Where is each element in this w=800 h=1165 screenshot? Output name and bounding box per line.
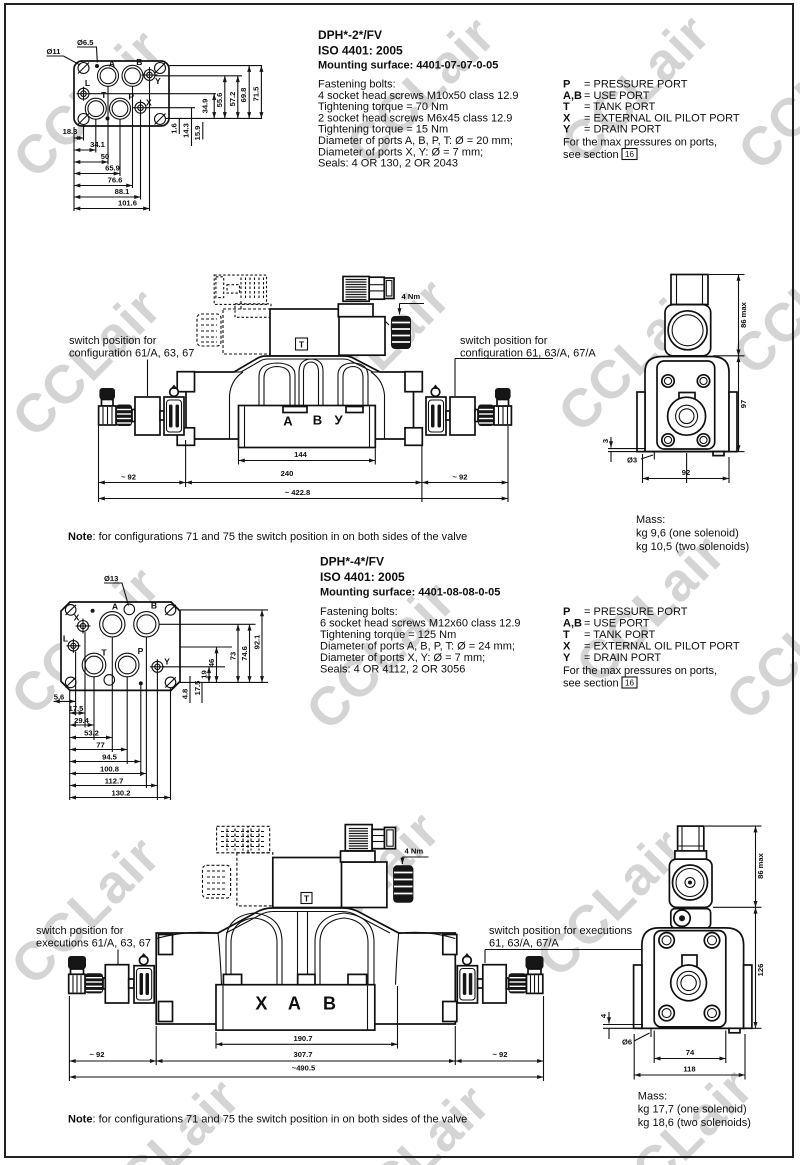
svg-text:~ 92: ~ 92 [453,473,468,482]
svg-text:6 socket head screws M12x60 cl: 6 socket head screws M12x60 class 12.9 [320,618,521,630]
svg-text:61, 63/A, 67/A: 61, 63/A, 67/A [489,938,559,950]
svg-text:Mounting surface: 4401-07-07-0: Mounting surface: 4401-07-07-0-05 [318,60,498,72]
svg-text:X: X [563,641,571,653]
svg-text:see section: see section [563,678,619,690]
svg-text:55.6: 55.6 [215,93,224,108]
svg-text:P: P [128,92,134,102]
svg-text:DPH*-2*/FV: DPH*-2*/FV [318,28,382,42]
svg-text:Diameter of ports X, Y: Ø = 7: Diameter of ports X, Y: Ø = 7 mm; [320,652,485,664]
svg-text:65.9: 65.9 [105,164,120,173]
svg-text:CCLair: CCLair [721,215,800,387]
svg-text:У: У [334,413,343,428]
svg-text:126: 126 [756,964,765,977]
svg-text:14.3: 14.3 [182,123,191,138]
svg-text:34.9: 34.9 [201,99,210,114]
svg-text:Diameter of ports A, B, P, T:: Diameter of ports A, B, P, T: Ø = 20 mm; [318,135,513,147]
svg-text:2 socket head screws M6x45 cla: 2 socket head screws M6x45 class 12.9 [318,112,512,124]
svg-text:= TANK PORT: = TANK PORT [584,101,655,113]
svg-text:4.8: 4.8 [181,689,190,700]
svg-text:53.2: 53.2 [84,729,99,738]
svg-text:T: T [563,629,570,641]
svg-text:~ 422.8: ~ 422.8 [285,488,311,497]
svg-text:19: 19 [200,670,209,678]
svg-text:B: B [151,601,157,611]
svg-text:Ø6: Ø6 [622,1038,632,1047]
svg-text:switch position for: switch position for [36,925,124,937]
svg-text:101.6: 101.6 [118,199,137,208]
svg-text:3: 3 [601,439,610,443]
svg-text:P: P [138,646,144,656]
svg-text:X: X [74,613,80,623]
svg-text:Y: Y [563,124,571,136]
svg-text:= USE PORT: = USE PORT [584,618,650,630]
svg-text:A: A [288,994,301,1014]
svg-text:Note: for configurations 71 an: Note: for configurations 71 and 75 the s… [68,1114,467,1126]
svg-text:T: T [101,90,107,100]
svg-text:77: 77 [96,741,104,750]
svg-text:46: 46 [207,659,216,667]
svg-text:~ 92: ~ 92 [121,473,136,482]
svg-text:P: P [563,606,570,618]
svg-text:86 max: 86 max [756,852,765,879]
svg-text:B: B [323,994,336,1014]
svg-text:For the max pressures on ports: For the max pressures on ports, [563,137,717,149]
svg-text:Diameter of ports X, Y: Ø = 7: Diameter of ports X, Y: Ø = 7 mm; [318,146,483,158]
svg-text:DPH*-4*/FV: DPH*-4*/FV [320,555,384,569]
svg-text:Tightening torque = 70 Nm: Tightening torque = 70 Nm [318,101,448,113]
svg-text:88.1: 88.1 [115,187,131,196]
svg-text:34.1: 34.1 [90,140,106,149]
svg-text:97: 97 [739,400,748,408]
svg-text:CCLair: CCLair [727,10,800,182]
svg-text:kg 17,7 (one solenoid): kg 17,7 (one solenoid) [638,1104,747,1116]
svg-text:Ø3: Ø3 [627,456,637,465]
svg-text:Y: Y [155,76,161,86]
svg-text:~490.5: ~490.5 [292,1064,316,1073]
svg-text:For the max pressures on ports: For the max pressures on ports, [563,665,717,677]
svg-text:= DRAIN PORT: = DRAIN PORT [584,652,661,664]
svg-text:~ 92: ~ 92 [90,1050,105,1059]
svg-text:17.5: 17.5 [193,680,202,696]
svg-text:X: X [255,994,267,1014]
svg-text:L: L [63,634,68,644]
svg-text:= TANK PORT: = TANK PORT [584,629,655,641]
svg-text:4 socket head screws M10x50 cl: 4 socket head screws M10x50 class 12.9 [318,90,519,102]
svg-text:Ø13: Ø13 [104,574,118,583]
svg-text:16: 16 [625,679,634,688]
svg-text:P: P [563,79,570,91]
svg-text:= EXTERNAL OIL PILOT PORT: = EXTERNAL OIL PILOT PORT [584,641,740,653]
svg-text:5.6: 5.6 [54,693,65,702]
svg-text:73: 73 [229,652,238,660]
svg-text:29.4: 29.4 [74,716,90,725]
svg-text:112.7: 112.7 [105,777,124,786]
svg-text:4: 4 [599,1013,608,1018]
svg-text:= EXTERNAL OIL PILOT PORT: = EXTERNAL OIL PILOT PORT [584,112,740,124]
svg-text:Mounting surface: 4401-08-08-0: Mounting surface: 4401-08-08-0-05 [320,587,500,599]
svg-text:15.9: 15.9 [193,126,202,141]
svg-text:Y: Y [563,652,571,664]
svg-text:17.5: 17.5 [69,704,85,713]
svg-text:100.8: 100.8 [100,765,119,774]
svg-text:switch position for: switch position for [69,335,157,347]
svg-text:ISO 4401: 2005: ISO 4401: 2005 [318,44,403,58]
svg-text:74: 74 [686,1048,695,1057]
svg-text:71.5: 71.5 [251,86,260,102]
svg-text:Fastening bolts:: Fastening bolts: [320,606,398,618]
svg-text:switch position for executions: switch position for executions [489,925,633,937]
svg-text:Note: for configurations 71 an: Note: for configurations 71 and 75 the s… [68,531,467,543]
svg-text:A,B: A,B [563,618,582,630]
svg-text:executions 61/A, 63, 67: executions 61/A, 63, 67 [36,938,151,950]
svg-text:Seals: 4 OR 4112, 2 OR 3056: Seals: 4 OR 4112, 2 OR 3056 [320,664,465,676]
svg-text:Ø6.5: Ø6.5 [77,38,94,47]
svg-text:Tightening torque = 15 Nm: Tightening torque = 15 Nm [318,124,448,136]
svg-text:92.1: 92.1 [253,634,262,650]
svg-text:A: A [112,602,118,612]
svg-text:~ 92: ~ 92 [493,1050,508,1059]
svg-text:4 Nm: 4 Nm [402,292,421,301]
svg-text:Tightening torque = 125 Nm: Tightening torque = 125 Nm [320,629,456,641]
svg-text:= PRESSURE PORT: = PRESSURE PORT [584,79,688,91]
svg-text:307.7: 307.7 [293,1050,312,1059]
svg-text:B: B [136,57,142,67]
svg-text:76.6: 76.6 [108,176,123,185]
svg-text:Fastening bolts:: Fastening bolts: [318,79,396,91]
svg-text:T: T [101,648,107,658]
svg-text:118: 118 [683,1065,695,1074]
svg-text:Mass:: Mass: [638,1091,667,1103]
svg-text:X: X [563,112,571,124]
svg-text:L: L [85,78,90,88]
svg-text:130.2: 130.2 [111,789,130,798]
svg-text:Ø11: Ø11 [47,47,62,56]
svg-text:= PRESSURE PORT: = PRESSURE PORT [584,606,688,618]
svg-text:50: 50 [101,152,109,161]
svg-text:switch position for: switch position for [460,335,548,347]
svg-text:92: 92 [682,468,690,477]
svg-text:T: T [299,340,305,350]
svg-text:Y: Y [164,657,170,667]
svg-text:A: A [109,59,115,69]
svg-text:configuration 61/A, 63, 67: configuration 61/A, 63, 67 [69,348,194,360]
svg-text:94.5: 94.5 [102,753,118,762]
svg-text:Diameter of ports A, B, P, T:: Diameter of ports A, B, P, T: Ø = 24 mm; [320,641,515,653]
svg-text:74.6: 74.6 [240,646,249,661]
svg-text:69.8: 69.8 [239,88,248,103]
svg-text:kg 9,6 (one solenoid): kg 9,6 (one solenoid) [636,528,739,540]
svg-text:1.6: 1.6 [169,123,178,134]
svg-text:86 max: 86 max [739,301,748,328]
svg-text:A,B: A,B [563,90,582,102]
svg-text:kg 18,6 (two solenoids): kg 18,6 (two solenoids) [638,1117,751,1129]
svg-text:see section: see section [563,149,619,161]
svg-text:configuration 61, 63/A, 67/A: configuration 61, 63/A, 67/A [460,348,596,360]
svg-text:190.7: 190.7 [293,1034,312,1043]
svg-text:16: 16 [625,150,634,159]
svg-text:T: T [563,101,570,113]
svg-text:4 Nm: 4 Nm [405,847,424,856]
svg-text:= USE PORT: = USE PORT [584,90,650,102]
svg-text:18.3: 18.3 [63,127,78,136]
svg-text:Mass:: Mass: [636,514,665,526]
svg-text:В: В [313,413,322,428]
svg-text:144: 144 [294,450,307,459]
svg-text:57.2: 57.2 [228,92,237,107]
svg-text:kg 10,5 (two solenoids): kg 10,5 (two solenoids) [636,541,749,553]
svg-text:А: А [283,414,293,429]
svg-text:Seals: 4 OR 130, 2 OR 2043: Seals: 4 OR 130, 2 OR 2043 [318,158,458,170]
svg-text:= DRAIN PORT: = DRAIN PORT [584,124,661,136]
svg-text:ISO 4401: 2005: ISO 4401: 2005 [320,570,405,584]
svg-text:T: T [304,894,310,904]
svg-text:240: 240 [281,469,294,478]
